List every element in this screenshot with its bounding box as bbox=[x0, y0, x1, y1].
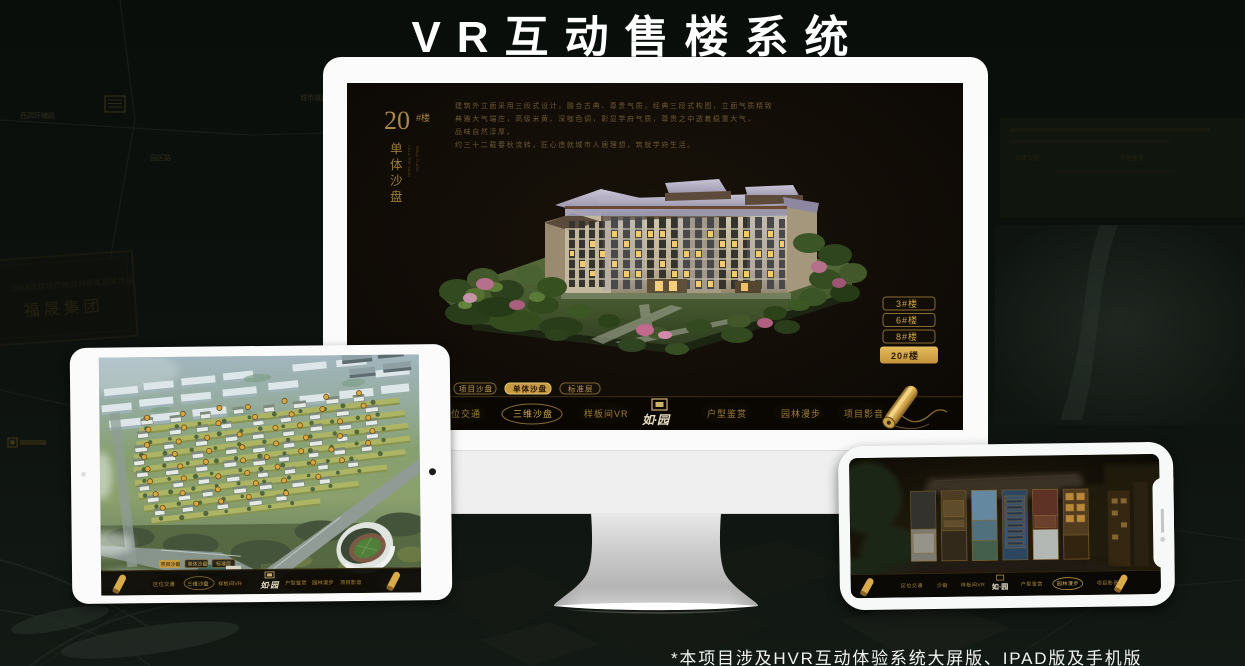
svg-text:VILLA THE SAND: VILLA THE SAND bbox=[407, 145, 412, 177]
svg-text:户型鉴赏: 户型鉴赏 bbox=[707, 408, 747, 419]
svg-text:园林漫步: 园林漫步 bbox=[312, 578, 334, 586]
svg-text:户型鉴赏: 户型鉴赏 bbox=[1120, 154, 1144, 162]
svg-text:园林漫步: 园林漫步 bbox=[1057, 580, 1079, 587]
svg-text:项目影音: 项目影音 bbox=[1097, 579, 1119, 586]
svg-text:体: 体 bbox=[390, 158, 403, 172]
svg-text:3#楼: 3#楼 bbox=[896, 298, 918, 309]
svg-text:典雅大气端庄，高级米黄、深咖色调，彰显学府气质，尊贵之中透着: 典雅大气端庄，高级米黄、深咖色调，彰显学府气质，尊贵之中透着稳重大气， bbox=[455, 114, 756, 123]
svg-text:区位交通: 区位交通 bbox=[901, 582, 923, 589]
svg-text:样板间VR: 样板间VR bbox=[218, 579, 242, 587]
svg-text:园林漫步: 园林漫步 bbox=[781, 408, 821, 419]
svg-text:标准层: 标准层 bbox=[568, 384, 594, 394]
svg-text:如·园: 如·园 bbox=[642, 413, 671, 427]
svg-text:样板间VR: 样板间VR bbox=[961, 581, 986, 588]
svg-text:TABLE CLASS: TABLE CLASS bbox=[415, 145, 420, 172]
svg-text:三维沙盘: 三维沙盘 bbox=[187, 580, 209, 588]
svg-text:建筑外立面采用三段式设计，融合古典、尊贵气质，经典三段式构图: 建筑外立面采用三段式设计，融合古典、尊贵气质，经典三段式构图，立面气质精致 bbox=[455, 101, 773, 110]
svg-text:盘: 盘 bbox=[390, 189, 403, 204]
svg-text:区位交通: 区位交通 bbox=[153, 580, 175, 588]
svg-text:园区路: 园区路 bbox=[150, 153, 171, 162]
svg-text:如·园: 如·园 bbox=[260, 581, 280, 590]
svg-text:沙: 沙 bbox=[390, 174, 403, 188]
svg-text:三维沙盘: 三维沙盘 bbox=[513, 408, 553, 419]
svg-text:户型鉴赏: 户型鉴赏 bbox=[1021, 580, 1043, 587]
svg-text:品味自然淳厚。: 品味自然淳厚。 bbox=[455, 127, 515, 136]
svg-text:西四环辅路: 西四环辅路 bbox=[20, 111, 55, 120]
svg-text:20#楼: 20#楼 bbox=[891, 350, 919, 361]
svg-text:样板间VR: 样板间VR bbox=[584, 408, 629, 419]
svg-text:项目沙盘: 项目沙盘 bbox=[1015, 154, 1039, 162]
svg-text:8#楼: 8#楼 bbox=[896, 331, 918, 342]
svg-text:项目影音: 项目影音 bbox=[340, 578, 362, 586]
svg-text:#楼: #楼 bbox=[416, 112, 430, 123]
svg-text:沙盘: 沙盘 bbox=[937, 582, 948, 589]
svg-text:单体沙盘: 单体沙盘 bbox=[513, 384, 547, 394]
svg-text:项目影音: 项目影音 bbox=[844, 408, 884, 419]
svg-text:项目沙盘: 项目沙盘 bbox=[459, 384, 493, 394]
svg-text:约三十二载春秋流转，匠心造就城市人居理想，筑就学府生活。: 约三十二载春秋流转，匠心造就城市人居理想，筑就学府生活。 bbox=[455, 140, 696, 149]
svg-text:如·园: 如·园 bbox=[992, 582, 1008, 591]
svg-text:户型鉴赏: 户型鉴赏 bbox=[285, 579, 307, 587]
svg-text:6#楼: 6#楼 bbox=[896, 315, 918, 326]
svg-text:单: 单 bbox=[390, 142, 403, 156]
svg-text:项目沙盘: 项目沙盘 bbox=[160, 561, 180, 568]
svg-text:单体沙盘: 单体沙盘 bbox=[187, 561, 207, 568]
svg-text:20: 20 bbox=[384, 106, 410, 135]
